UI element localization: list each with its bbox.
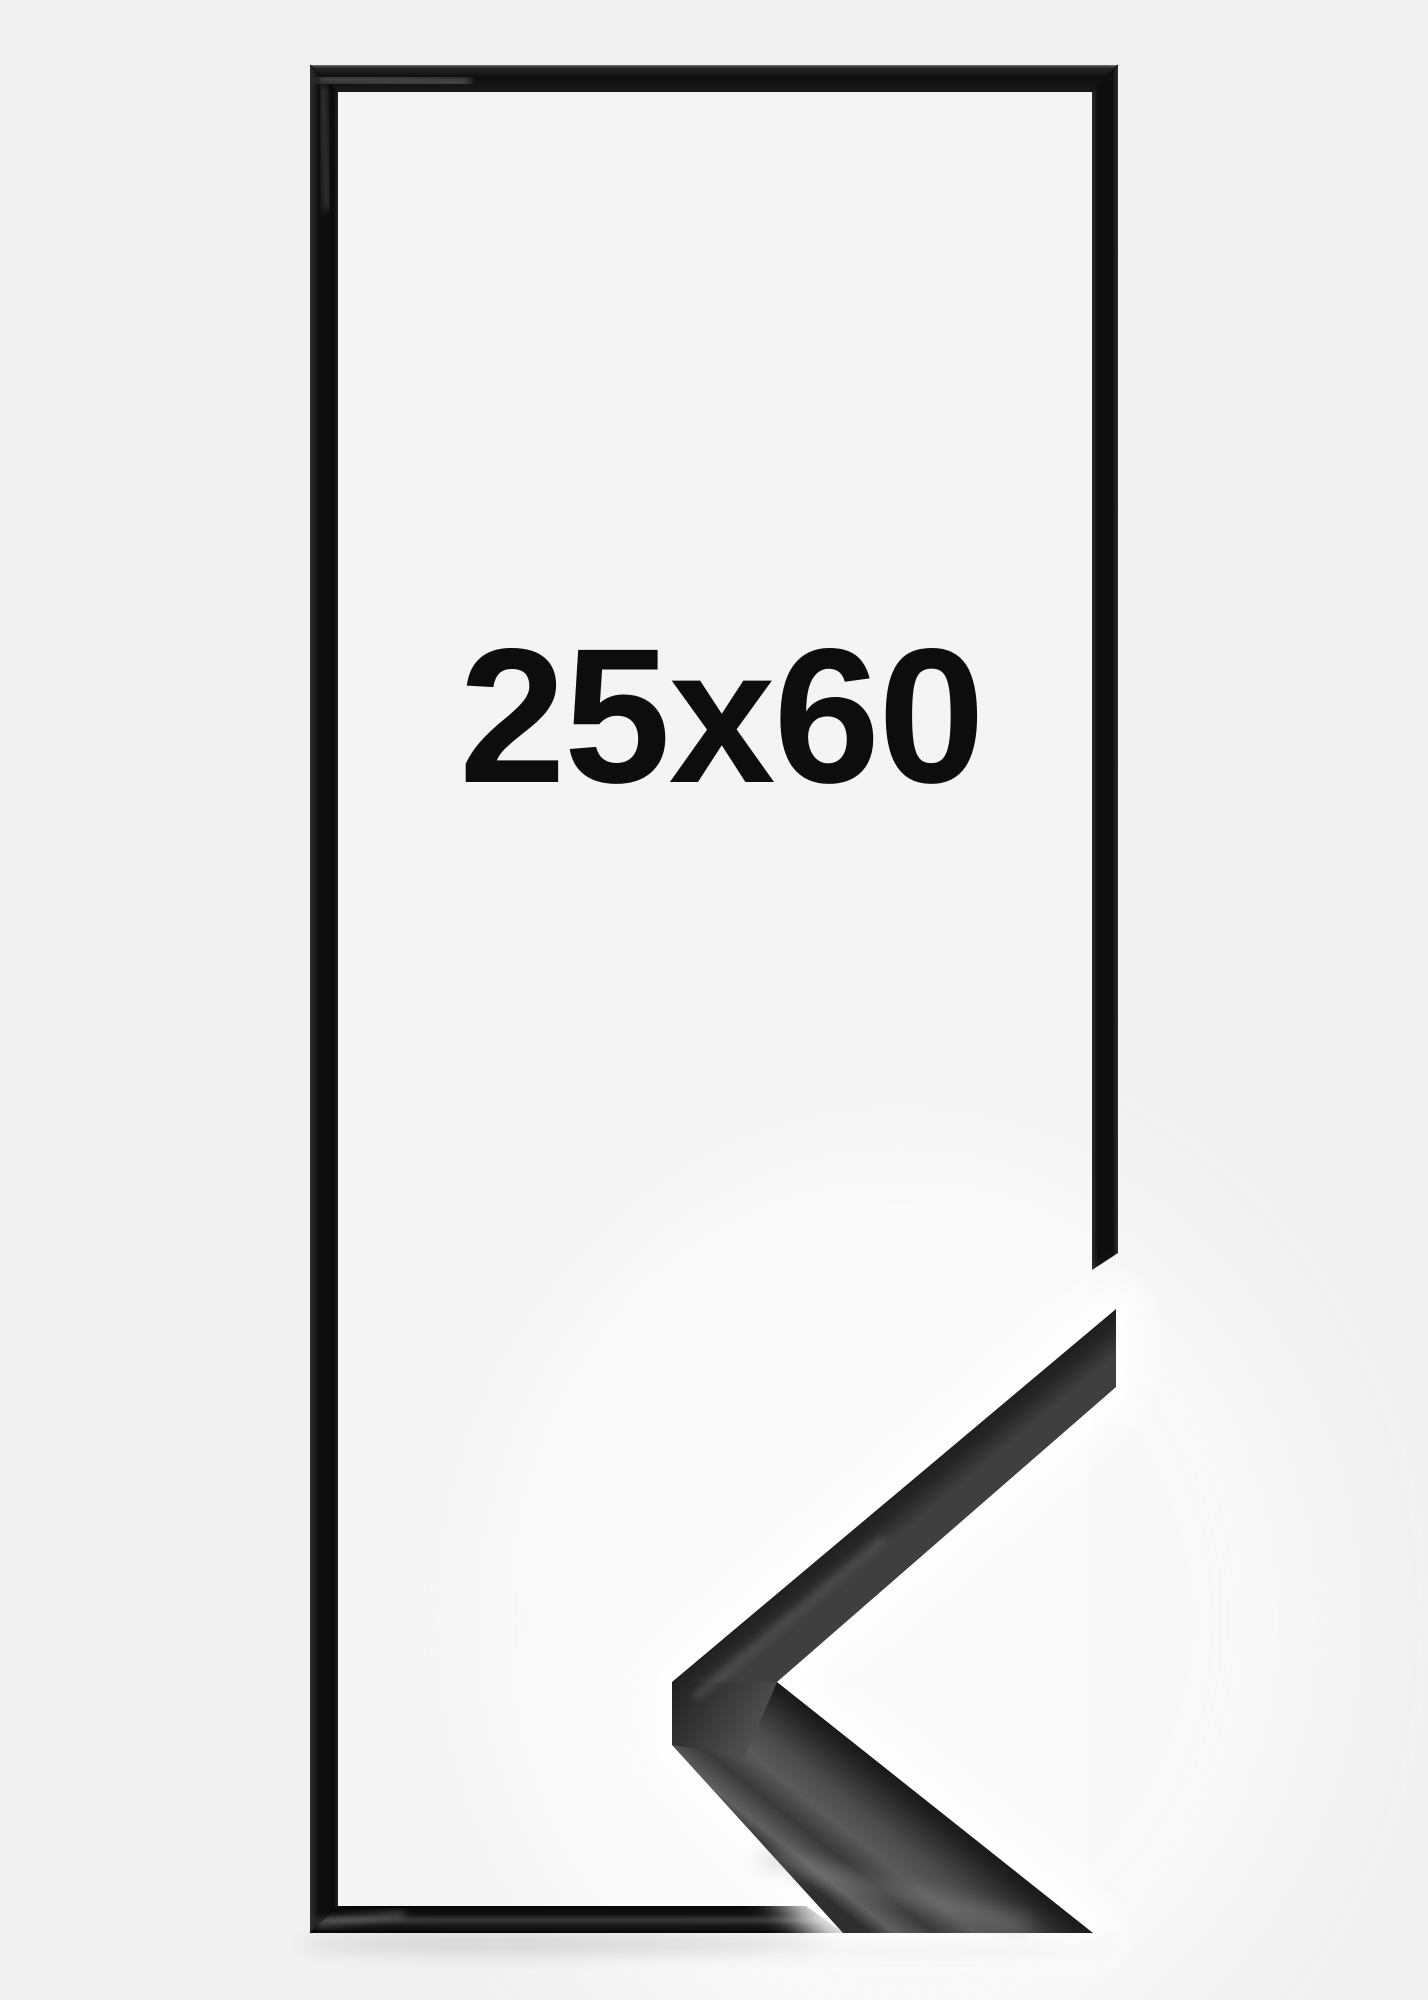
highlight-left-bar bbox=[323, 85, 327, 210]
highlight-top-left-miter bbox=[318, 79, 470, 82]
product-photo: 25x60 bbox=[0, 0, 1428, 2000]
size-label: 25x60 bbox=[317, 646, 1125, 786]
frame-left-bar bbox=[310, 65, 338, 1933]
photo-canvas bbox=[0, 0, 1428, 2000]
shadow-under-bottom-bar bbox=[300, 1934, 820, 1954]
